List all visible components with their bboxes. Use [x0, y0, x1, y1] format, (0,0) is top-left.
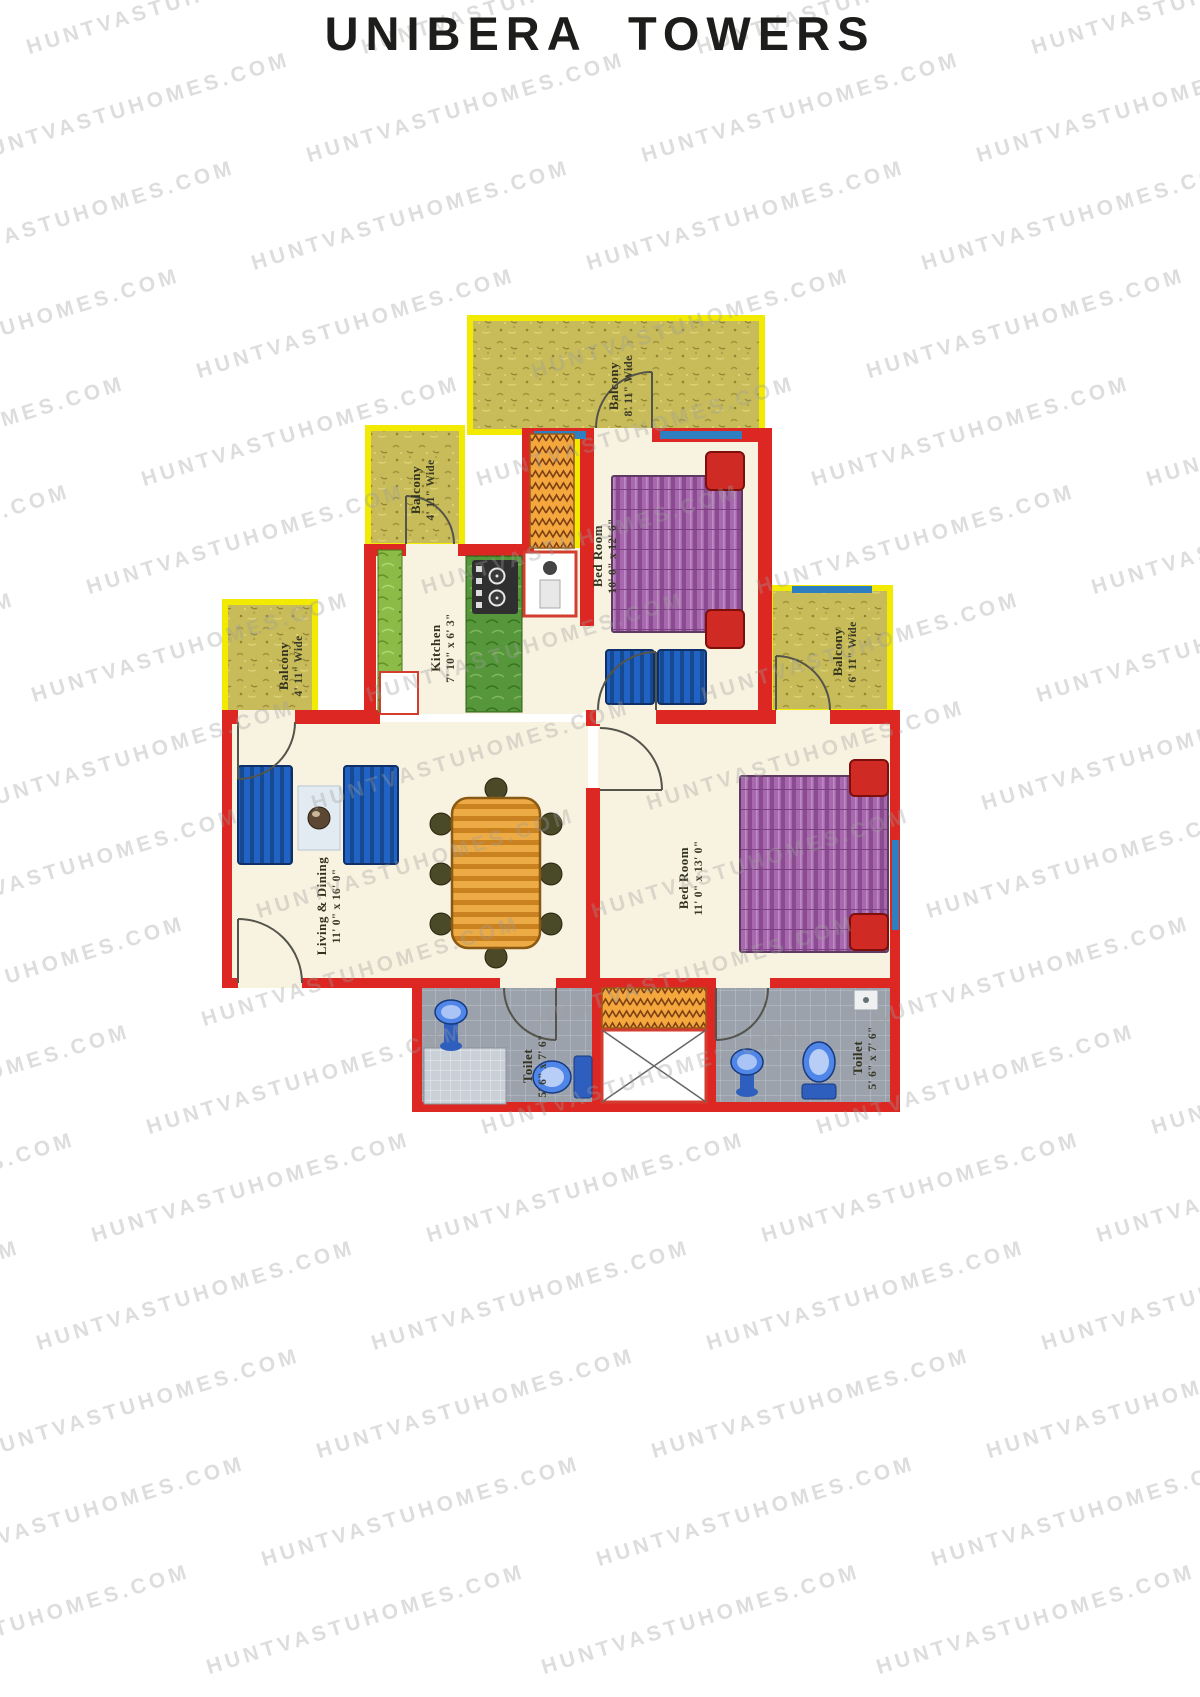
label-bedroom-right: Bed Room 11' 0" x 13' 0" [676, 841, 705, 916]
room-name: Balcony [830, 628, 845, 676]
pillow [706, 610, 744, 648]
drain-icon [854, 990, 878, 1010]
room-name: Toilet [520, 1049, 535, 1083]
seat [658, 650, 706, 704]
room-name: Living & Dining [314, 857, 329, 956]
room-name: Bed Room [590, 525, 605, 587]
room-size: 5' 6" x 7' 6" [537, 1034, 549, 1097]
wc-icon [802, 1042, 836, 1099]
wardrobe-trim [574, 434, 580, 548]
floor-plan: Balcony 8' 11" Wide Balcony 4' 11" Wide … [0, 0, 1200, 1697]
sofa [238, 766, 292, 864]
kitchen-cabinet [380, 672, 418, 714]
room-name: Kitchen [428, 624, 443, 672]
room-name: Balcony [408, 466, 423, 514]
sink-shaft [524, 552, 576, 616]
room-name: Balcony [606, 362, 621, 410]
wardrobe-horizontal [602, 988, 706, 1028]
bedroom-right-furniture [740, 760, 888, 952]
label-balcony-right: Balcony 6' 11" Wide [830, 621, 859, 682]
room-size: 8' 11" Wide [623, 355, 635, 416]
label-living-dining: Living & Dining 11' 0" x 16' 0" [314, 857, 343, 956]
coffee-table [308, 807, 330, 829]
wardrobe-vertical [530, 434, 574, 548]
room-name: Balcony [276, 642, 291, 690]
pillow [850, 914, 888, 950]
pillow [706, 452, 744, 490]
label-balcony-mid-left: Balcony 4' 11" Wide [276, 635, 305, 696]
page-title: UNIBERA TOWERS [0, 0, 1200, 61]
label-bedroom-top: Bed Room 10' 0" x 12' 6" [590, 518, 619, 593]
stove-icon [472, 560, 518, 614]
room-size: 5' 6" x 7' 6" [867, 1026, 879, 1089]
room-size: 4' 11" Wide [293, 635, 305, 696]
room-size: 7' 10" x 6' 3" [445, 613, 457, 682]
room-size: 4' 11" Wide [425, 459, 437, 520]
room-name: Bed Room [676, 847, 691, 909]
shower-area [424, 1048, 506, 1104]
sofa [344, 766, 398, 864]
table-highlight [312, 811, 320, 817]
window-bedroom-top-2 [660, 431, 742, 439]
room-name: Toilet [850, 1041, 865, 1075]
label-balcony-top: Balcony 8' 11" Wide [606, 355, 635, 416]
room-size: 11' 0" x 16' 0" [331, 869, 343, 944]
room-size: 11' 0" x 13' 0" [693, 841, 705, 916]
dining-table [452, 798, 540, 948]
bed [612, 476, 742, 632]
duct-shaft [602, 1030, 706, 1102]
window-balcony-right [792, 586, 872, 593]
pillow [850, 760, 888, 796]
window-bedroom-right [892, 840, 899, 930]
room-size: 10' 0" x 12' 6" [607, 518, 619, 593]
room-size: 6' 11" Wide [847, 621, 859, 682]
label-balcony-upper-left: Balcony 4' 11" Wide [408, 459, 437, 520]
